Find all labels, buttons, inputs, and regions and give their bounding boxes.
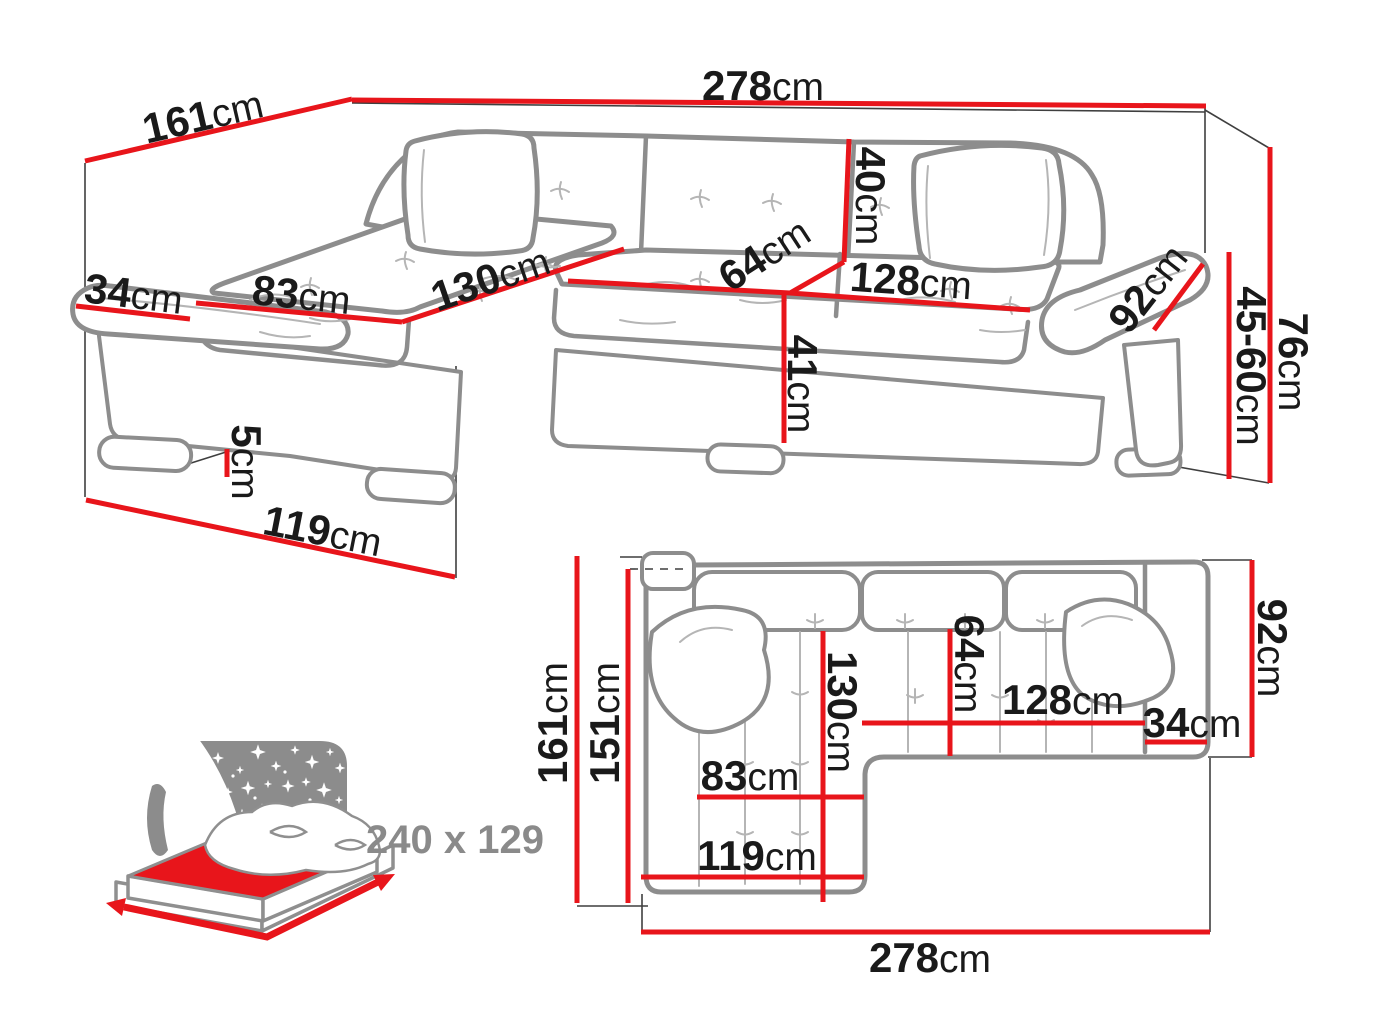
dim-label-161-plan: 161cm <box>529 662 576 784</box>
dim-label-119-plan: 119cm <box>697 832 817 879</box>
diagram-canvas: 278cm 161cm 34cm 83cm 130cm 40cm 64cm 12… <box>0 0 1373 1030</box>
sofa-leg <box>707 444 784 474</box>
sofa-leg <box>366 468 456 504</box>
plan-pillow-left <box>650 607 769 732</box>
bed-size-label: 240 x 129 <box>366 818 544 862</box>
dim-label-92-plan: 92cm <box>1249 599 1296 698</box>
dim-label-130-plan: 130cm <box>819 651 866 773</box>
dim-label-83-plan: 83cm <box>701 752 800 799</box>
dim-label-76: 76cm <box>1270 313 1317 412</box>
dim-label-34-plan: 34cm <box>1143 699 1242 746</box>
sofa-leg <box>98 436 191 472</box>
dim-label-278-plan: 278cm <box>869 934 991 981</box>
dim-label-128-plan: 128cm <box>1002 676 1124 723</box>
dim-label-151-plan: 151cm <box>581 662 628 784</box>
dim-label-278: 278cm <box>702 62 824 109</box>
pillow-right <box>914 145 1064 270</box>
dim-label-45-60: 45-60cm <box>1228 286 1275 445</box>
dim-label-41: 41cm <box>779 335 826 434</box>
dim-label-64-plan: 64cm <box>946 615 993 714</box>
dim-label-5: 5cm <box>223 424 270 499</box>
sofa-dimension-diagram: 278cm 161cm 34cm 83cm 130cm 40cm 64cm 12… <box>0 0 1373 1030</box>
plan-headrest-block <box>642 553 694 589</box>
dim-label-40: 40cm <box>847 147 894 246</box>
